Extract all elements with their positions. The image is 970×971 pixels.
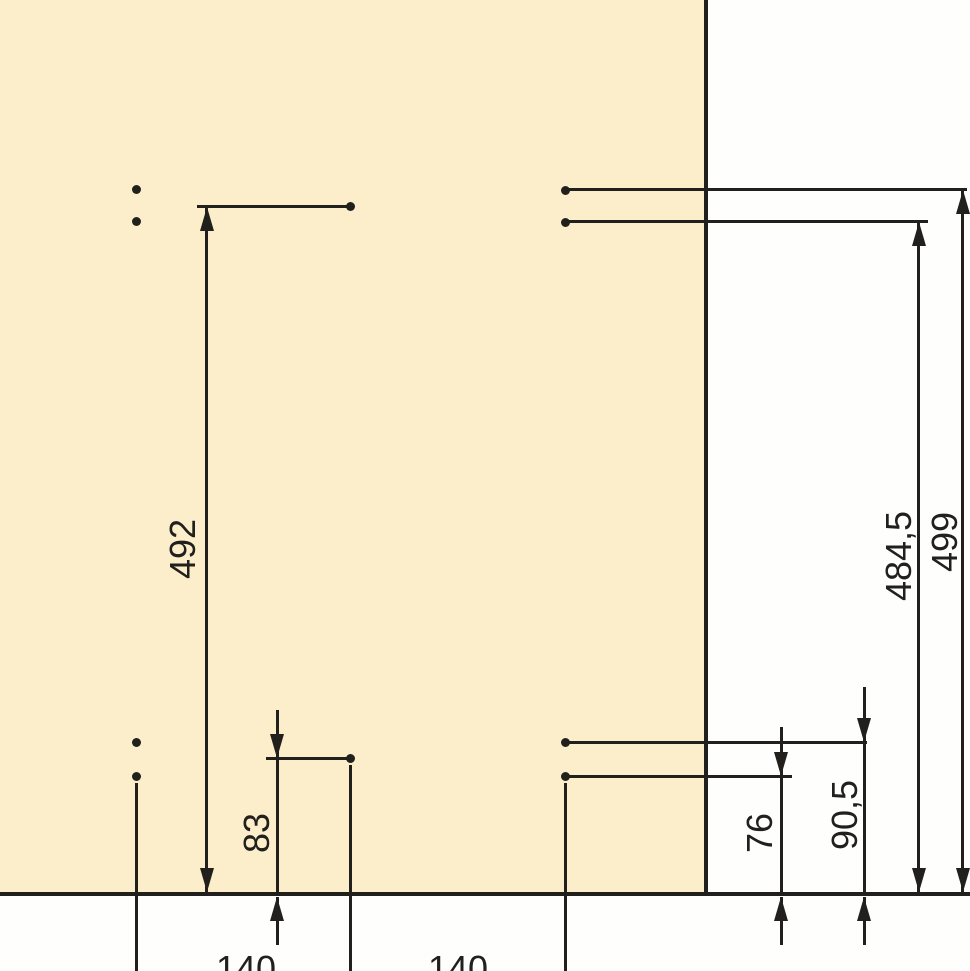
arrowhead-90-top	[857, 718, 871, 742]
extension-line-76-top	[566, 775, 792, 778]
extension-line-499-top	[566, 188, 967, 191]
panel-drilling-drawing: 492 484,5 499 83 76 90,5 140 140	[0, 0, 970, 971]
arrowhead-90-bottom	[857, 897, 871, 921]
panel-right-edge	[704, 0, 708, 896]
extension-line-140-right	[564, 783, 567, 971]
arrowhead-499-bottom	[956, 868, 970, 892]
panel-bottom-edge	[0, 892, 970, 896]
extension-line-140-left	[135, 783, 138, 971]
dimension-label-499: 499	[927, 512, 963, 572]
arrowhead-499-top	[956, 190, 970, 214]
arrowhead-83-bottom	[270, 897, 284, 921]
arrowhead-492-top	[200, 207, 214, 231]
arrowhead-83-top	[270, 734, 284, 758]
drill-hole-dot	[132, 217, 141, 226]
dimension-line-492	[205, 207, 208, 893]
dimension-label-140-right: 140	[428, 951, 488, 971]
dimension-label-492: 492	[165, 519, 201, 579]
arrowhead-484-bottom	[912, 868, 926, 892]
dimension-label-484-5: 484,5	[881, 511, 917, 601]
drill-hole-dot	[132, 772, 141, 781]
arrowhead-484-top	[912, 222, 926, 246]
drill-hole-dot	[132, 738, 141, 747]
dimension-label-90-5: 90,5	[827, 780, 863, 850]
arrowhead-492-bottom	[200, 868, 214, 892]
extension-line-484-top	[566, 220, 928, 223]
extension-line-492-top	[197, 205, 352, 208]
extension-line-90-top	[566, 741, 867, 744]
arrowhead-76-top	[774, 752, 788, 776]
extension-line-140-mid	[349, 765, 352, 971]
drill-hole-dot	[132, 185, 141, 194]
dimension-label-83: 83	[239, 813, 275, 853]
dimension-label-140-left: 140	[216, 951, 276, 971]
dimension-label-76: 76	[742, 813, 778, 853]
arrowhead-76-bottom	[774, 897, 788, 921]
